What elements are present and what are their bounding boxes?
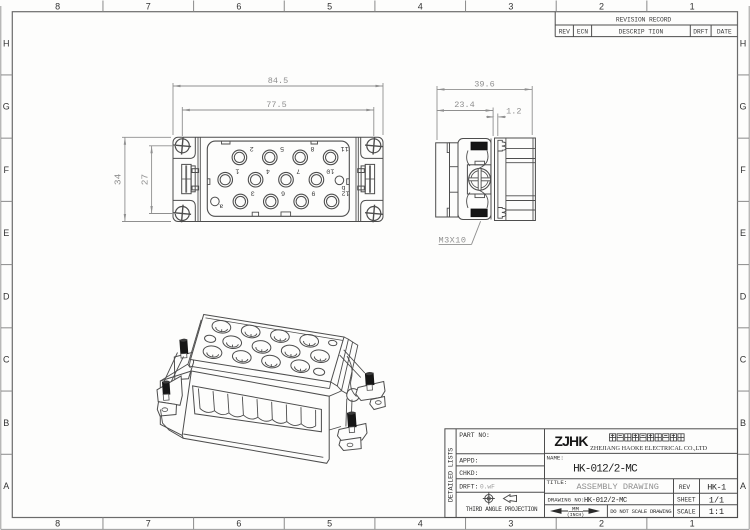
svg-text:77.5: 77.5 [266,100,286,110]
svg-text:a: a [219,201,223,209]
svg-text:TITLE:: TITLE: [547,479,568,486]
svg-text:2: 2 [599,518,604,528]
svg-text:DRFT: DRFT [693,28,708,35]
svg-text:REVISION RECORD: REVISION RECORD [616,17,672,24]
svg-text:8: 8 [310,144,314,152]
svg-text:7: 7 [296,167,300,175]
svg-text:1: 1 [690,518,695,528]
svg-text:39.6: 39.6 [474,80,494,90]
svg-text:3: 3 [508,518,513,528]
svg-text:DRFT:: DRFT: [459,484,478,491]
svg-text:2: 2 [250,144,254,152]
svg-text:PART NO:: PART NO: [459,432,490,439]
svg-text:F: F [740,165,746,175]
svg-text:34: 34 [113,173,124,185]
svg-text:84.5: 84.5 [268,76,288,86]
svg-text:1:1: 1:1 [709,507,724,517]
svg-text:E: E [740,228,746,238]
svg-text:HK-012/2-MC: HK-012/2-MC [584,497,627,505]
svg-text:11: 11 [341,144,349,152]
svg-text:D: D [3,291,10,301]
svg-text:6: 6 [281,188,285,196]
svg-text:5: 5 [327,518,332,528]
svg-text:HK-012/2-MC: HK-012/2-MC [573,463,638,475]
svg-text:5: 5 [280,144,284,152]
svg-text:DATE: DATE [717,28,732,35]
svg-text:4: 4 [418,518,423,528]
svg-text:REV: REV [679,484,690,491]
svg-text:27: 27 [139,174,150,185]
svg-text:G: G [739,102,746,112]
svg-text:DETAILED LISTS: DETAILED LISTS [448,448,456,502]
svg-text:SHEET: SHEET [677,497,696,504]
svg-text:CHKD:: CHKD: [459,470,478,477]
svg-text:4: 4 [266,167,270,175]
svg-text:6: 6 [236,518,241,528]
svg-text:THIRD ANGLE PROJECTION: THIRD ANGLE PROJECTION [466,506,538,513]
svg-text:DRAWING NO:: DRAWING NO: [548,497,585,504]
svg-text:F: F [3,165,9,175]
svg-text:2: 2 [599,1,604,11]
svg-text:C: C [740,355,747,365]
svg-text:5: 5 [327,1,332,11]
svg-text:1.2: 1.2 [506,107,521,117]
svg-text:G: G [3,102,10,112]
svg-text:ASSEMBLY DRAWING: ASSEMBLY DRAWING [576,482,659,492]
svg-text:7: 7 [146,1,151,11]
svg-text:3: 3 [508,1,513,11]
svg-text:6: 6 [236,1,241,11]
svg-text:DESCRIP TION: DESCRIP TION [619,28,664,35]
svg-text:3: 3 [251,188,255,196]
svg-text:B: B [740,418,746,428]
svg-text:7: 7 [146,518,151,528]
svg-text:0.wF: 0.wF [480,484,495,491]
svg-text:(INCH): (INCH) [567,512,584,518]
svg-text:b: b [341,183,345,191]
svg-text:8: 8 [55,518,60,528]
svg-text:A: A [740,481,746,491]
svg-text:1: 1 [690,1,695,11]
svg-text:ECN: ECN [577,28,588,35]
svg-text:4: 4 [418,1,423,11]
svg-text:NAME:: NAME: [547,455,564,462]
svg-text:A: A [3,481,9,491]
svg-text:9: 9 [311,188,315,196]
svg-text:23.4: 23.4 [454,100,474,110]
svg-text:HK-1: HK-1 [707,482,726,492]
svg-text:H: H [3,39,10,49]
svg-text:E: E [3,228,9,238]
svg-text:ZJHK: ZJHK [554,433,588,449]
svg-text:DO NOT SCALE DRAWING: DO NOT SCALE DRAWING [610,508,672,515]
svg-text:C: C [3,355,10,365]
svg-text:1/1: 1/1 [709,495,724,505]
svg-text:1: 1 [235,167,239,175]
svg-text:ZHEJIANG HAOKE ELECTRICAL CO.,: ZHEJIANG HAOKE ELECTRICAL CO.,LTD [590,445,707,452]
svg-text:B: B [3,418,9,428]
svg-text:10: 10 [326,167,334,175]
svg-text:D: D [740,291,747,301]
svg-text:8: 8 [55,1,60,11]
svg-text:REV: REV [559,28,570,35]
svg-text:SCALE: SCALE [677,508,696,515]
svg-text:H: H [740,39,747,49]
svg-text:APPD:: APPD: [459,457,478,464]
